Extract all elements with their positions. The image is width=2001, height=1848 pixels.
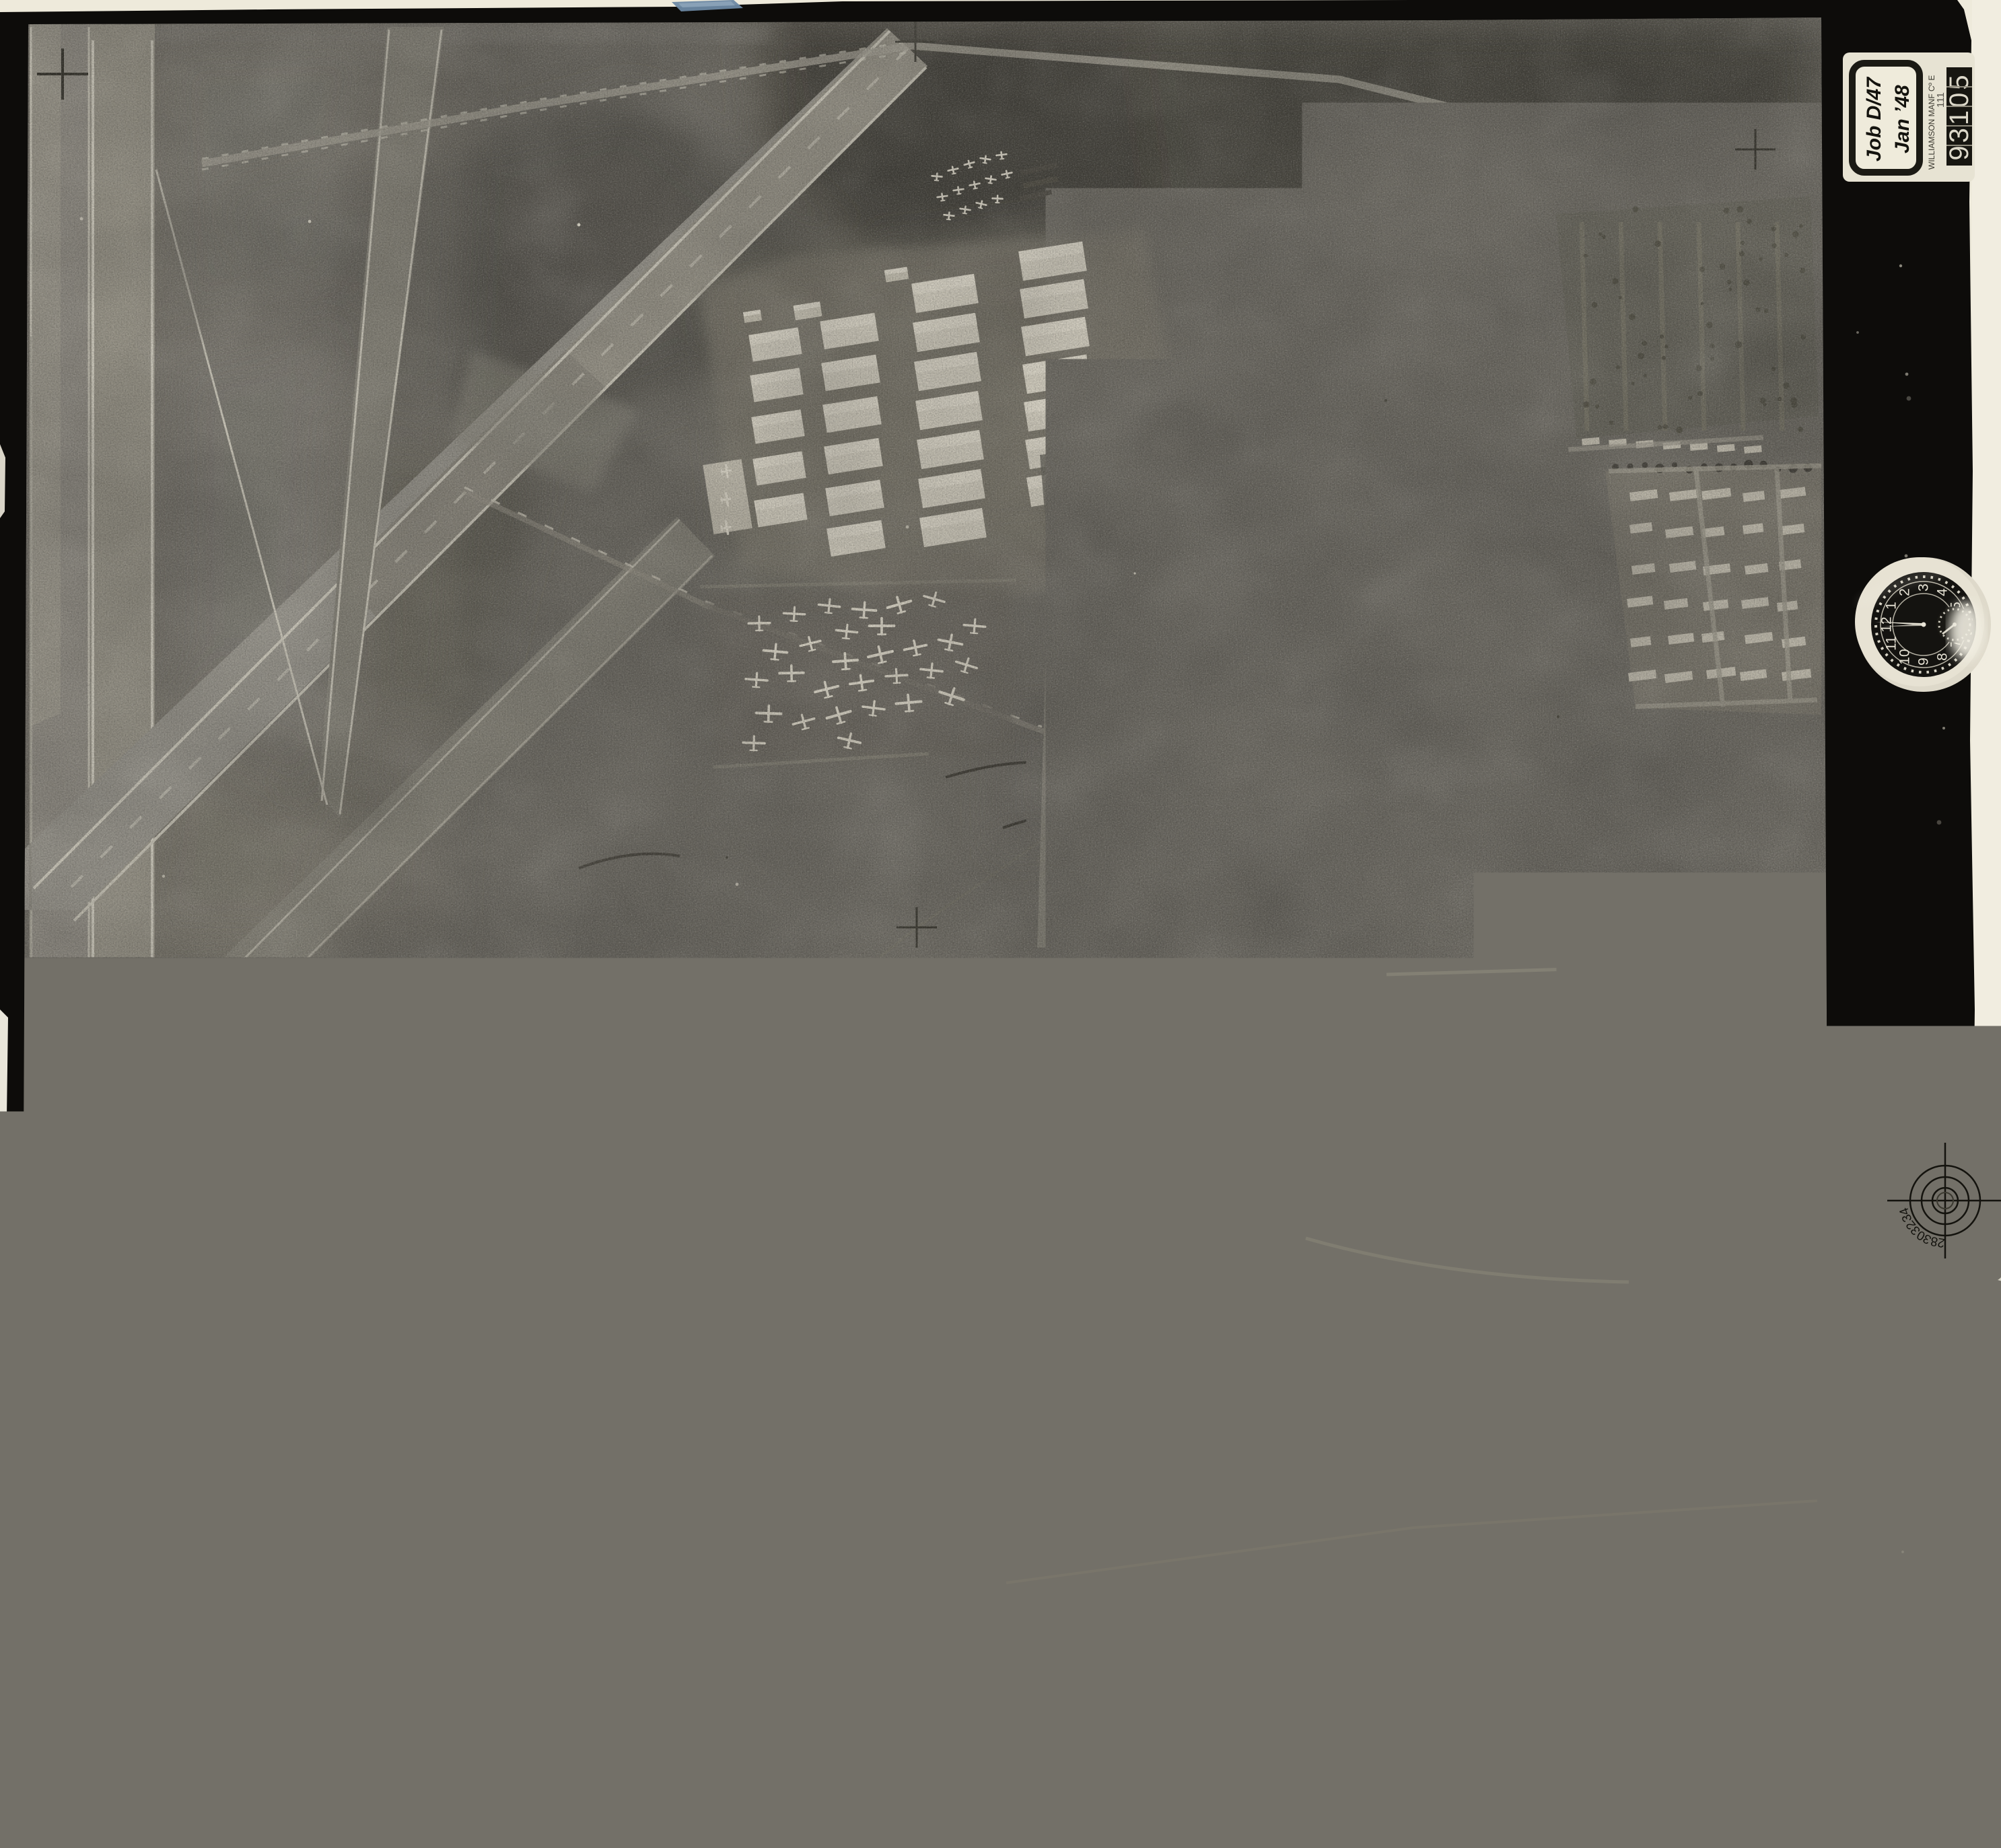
svg-text:0: 0	[1892, 1722, 1911, 1732]
svg-text:93105: 93105	[1944, 72, 1974, 160]
svg-text:2: 2	[1897, 588, 1913, 596]
svg-text:3: 3	[1916, 583, 1932, 592]
svg-text:10: 10	[1897, 649, 1913, 664]
svg-text:20,000 FT.: 20,000 FT.	[1958, 1705, 1966, 1740]
svg-text:Jan ’48: Jan ’48	[1891, 85, 1914, 153]
svg-text:11: 11	[1884, 636, 1899, 651]
svg-text:9: 9	[1916, 658, 1932, 666]
svg-text:5: 5	[1966, 1722, 1985, 1732]
svg-text:Job D/47: Job D/47	[1863, 77, 1885, 162]
svg-text:1: 1	[1884, 602, 1899, 610]
svg-text:8: 8	[1935, 653, 1951, 661]
svg-text:12: 12	[1879, 616, 1895, 632]
svg-text:4: 4	[1935, 588, 1951, 596]
svg-text:WILLIAMSON MANF Cº E: WILLIAMSON MANF Cº E	[1927, 75, 1936, 170]
